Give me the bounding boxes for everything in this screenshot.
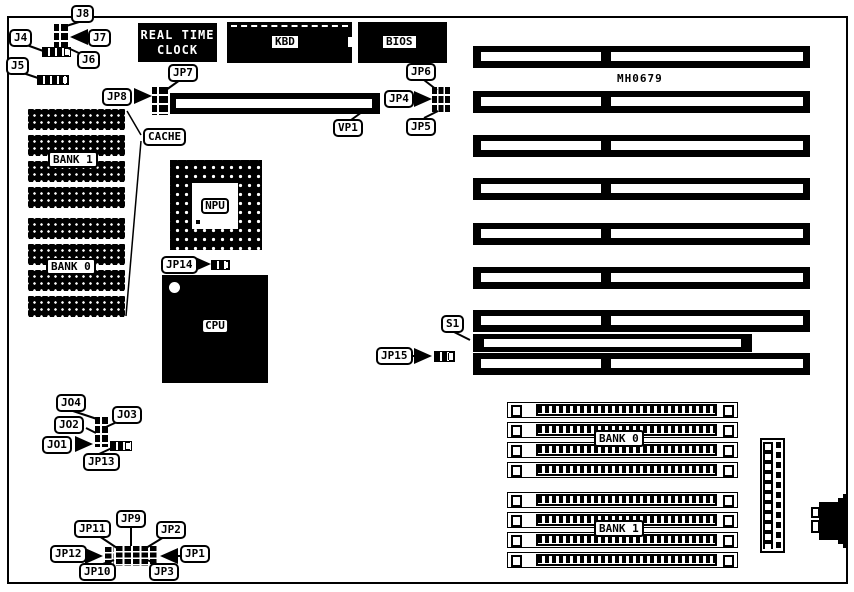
callout-jp8: JP8 — [102, 88, 132, 106]
callout-jp13: JP13 — [83, 453, 120, 471]
callout-j6: J6 — [77, 51, 100, 69]
callout-jo2: JO2 — [54, 416, 84, 434]
callout-jp6: JP6 — [406, 63, 436, 81]
callout-jp9: JP9 — [116, 510, 146, 528]
callout-jp7: JP7 — [168, 64, 198, 82]
callout-jo4: JO4 — [56, 394, 86, 412]
callout-jp3: JP3 — [149, 563, 179, 581]
callout-vp1: VP1 — [333, 119, 363, 137]
callout-jp5: JP5 — [406, 118, 436, 136]
callout-jp11: JP11 — [74, 520, 111, 538]
callout-jo3: JO3 — [112, 406, 142, 424]
callout-s1: S1 — [441, 315, 464, 333]
callout-j5: J5 — [6, 57, 29, 75]
callout-j4: J4 — [9, 29, 32, 47]
simm-bank1-label: BANK 1 — [594, 520, 644, 537]
callout-cache: CACHE — [143, 128, 186, 146]
callout-jp15: JP15 — [376, 347, 413, 365]
callout-jp10: JP10 — [79, 563, 116, 581]
callout-jp12: JP12 — [50, 545, 87, 563]
callout-jp4: JP4 — [384, 90, 414, 108]
callout-j8: J8 — [71, 5, 94, 23]
dip-bank0-label: BANK 0 — [46, 258, 96, 275]
callout-j7: J7 — [88, 29, 111, 47]
motherboard-diagram: REAL TIME CLOCK KBD BIOS BANK 1 BANK 0 N… — [0, 0, 854, 592]
dip-bank1-label: BANK 1 — [48, 151, 98, 168]
callout-jp14: JP14 — [161, 256, 198, 274]
simm-bank0-label: BANK 0 — [594, 430, 644, 447]
callout-jo1: JO1 — [42, 436, 72, 454]
callout-jp1: JP1 — [180, 545, 210, 563]
callout-jp2: JP2 — [156, 521, 186, 539]
